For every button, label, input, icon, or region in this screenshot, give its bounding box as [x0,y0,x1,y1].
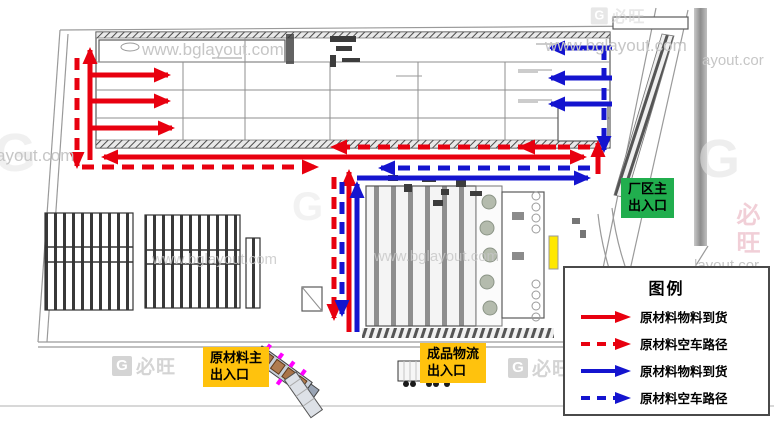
finished-goods-gate-label: 成品物流 出入口 [420,343,486,383]
legend-label: 原材料物料到货 [640,307,728,326]
watermark-url: www.bglayout.com [152,251,277,268]
legend-item-blue-dashed: 原材料空车路径 [565,384,768,411]
watermark-url: ayout.com [0,146,74,166]
legend-title: 图例 [565,275,768,299]
diagonal-parking-strip [614,34,674,198]
yellow-marker [549,236,558,269]
legend-label: 原材料空车路径 [640,388,728,407]
brand-watermark: G 必旺 [112,352,176,379]
watermark-url: www.bglayout.com [545,36,687,56]
blue-dashed-arrow-icon [578,390,632,406]
main-gate-label-line2: 出入口 [628,198,667,215]
raw-material-gate-label: 原材料主 出入口 [203,347,269,387]
legend-label: 原材料空车路径 [640,334,728,353]
legend-box: 图例 原材料物料到货 原材料空车路径 原材料物料到货 [563,266,770,416]
legend-item-blue-solid: 原材料物料到货 [565,357,768,384]
red-solid-arrow-icon [578,309,632,325]
brand-watermark-pink: 必旺 [728,202,763,258]
watermark-url: www.bglayout.com [142,40,284,60]
watermark-url: ayout.cor [702,52,764,69]
blue-solid-arrow-icon [578,363,632,379]
raw-material-gate-line2: 出入口 [210,367,262,384]
brand-logo-icon: G [508,358,528,378]
brand-logo-icon: G [591,7,608,24]
brand-name: 必旺 [136,352,176,379]
brand-g-watermark: G [292,185,323,230]
finished-goods-gate-line1: 成品物流 [427,346,479,363]
brand-logo-icon: G [112,356,132,376]
factory-logistics-plan: G G G [0,0,774,425]
finished-goods-gate-line2: 出入口 [427,363,479,380]
red-dashed-arrow-icon [578,336,632,352]
brand-name: 必旺 [611,4,645,27]
legend-item-red-solid: 原材料物料到货 [565,303,768,330]
hatched-strip [362,328,554,338]
main-gate-label-line1: 厂区主 [628,181,667,198]
watermark-url: www.bglayout.com [374,248,499,265]
raw-material-gate-line1: 原材料主 [210,350,262,367]
legend-item-red-dashed: 原材料空车路径 [565,330,768,357]
brand-g-watermark: G [698,128,740,190]
main-gate-label: 厂区主 出入口 [621,178,674,218]
brand-watermark: G 必旺 [591,4,645,27]
legend-label: 原材料物料到货 [640,361,728,380]
